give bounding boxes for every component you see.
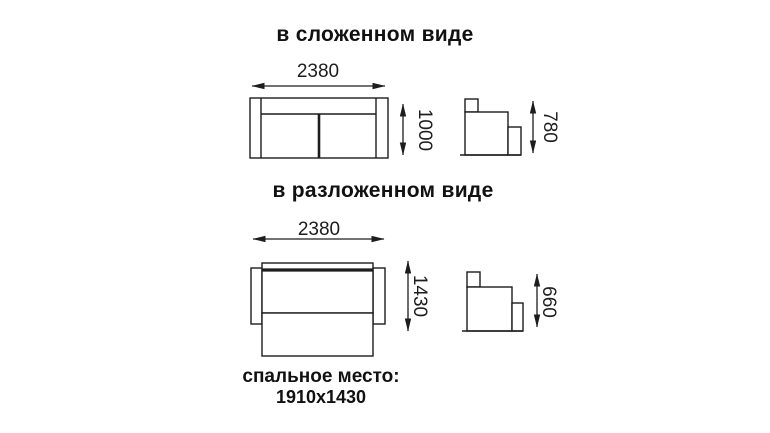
folded-side-height-dimension-label: 780 [539, 87, 559, 167]
folded-sofa-front-view [250, 98, 388, 158]
folded-sofa-side-view [460, 99, 521, 155]
unfolded-depth-dimension-label: 1430 [409, 256, 429, 336]
folded-height-dimension-label: 1000 [414, 90, 434, 170]
unfolded-side-height-dimension-label: 660 [538, 262, 558, 342]
unfolded-width-dimension-label: 2380 [279, 219, 359, 241]
sleeping-area-caption-line1: спальное место: [221, 366, 421, 387]
unfolded-section-title: в разложенном виде [183, 179, 583, 203]
folded-section-title: в сложенном виде [175, 23, 575, 47]
unfolded-sofa-side-view [462, 272, 523, 331]
unfolded-sofa-top-view [251, 263, 385, 356]
sofa-dimensions-diagram: в сложенном виде 2380 1000 780 в разложе… [0, 0, 770, 433]
sleeping-area-caption: спальное место: 1910x1430 [221, 366, 421, 408]
folded-width-dimension-label: 2380 [278, 61, 358, 83]
sleeping-area-caption-line2: 1910x1430 [221, 387, 421, 408]
